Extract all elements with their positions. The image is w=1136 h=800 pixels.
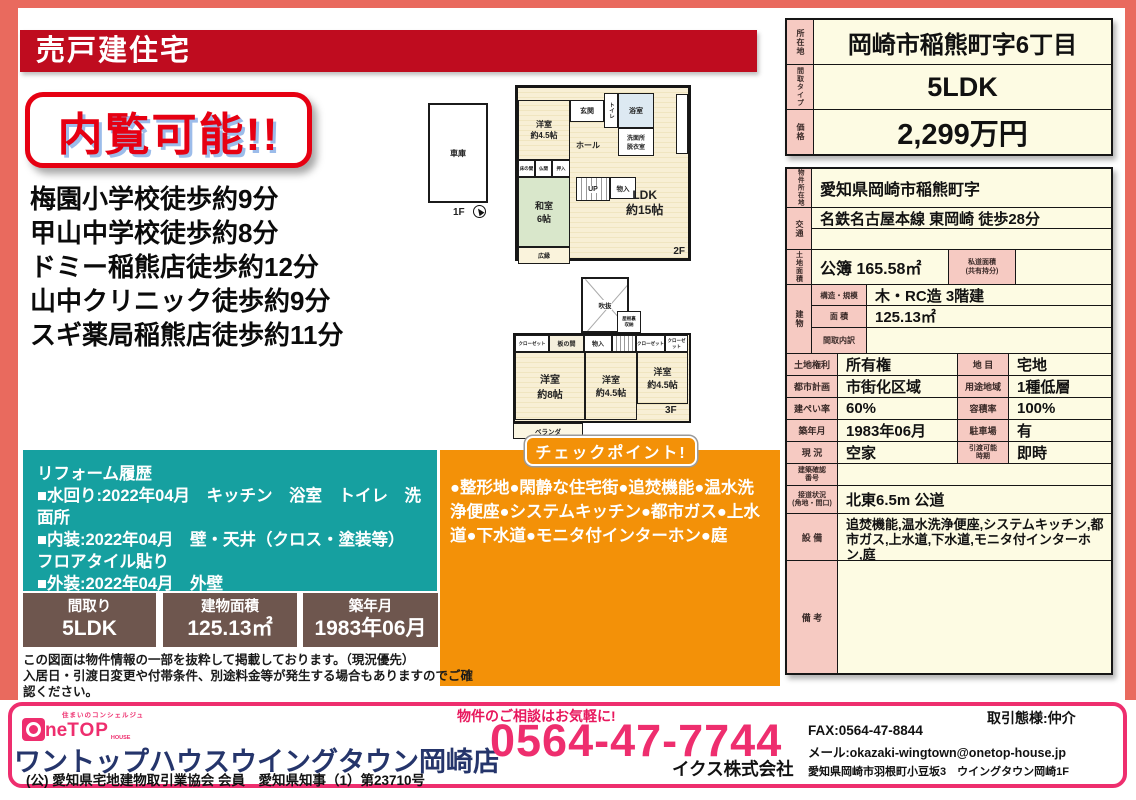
onetop-logo: ne TOP HOUSE [22,717,130,741]
reform-history-box: リフォーム履歴 ■水回り:2022年04月 キッチン 浴室 トイレ 洗面所 ■内… [23,450,437,591]
detail-biko [838,561,1111,673]
stat-label: 間取り [23,598,156,616]
detail-setsudo-label: 接道状況 (角地・間口) [787,486,837,513]
room-butsuma: 仏間 [535,160,552,177]
room-toilet: トイレ [604,93,618,128]
logo-o-icon [22,718,45,741]
stat-value: 125.13㎡ [163,616,297,642]
title-banner: 売戸建住宅 [20,30,757,72]
room-yoshitsu-8: 洋室 約8帖 [515,352,585,420]
email-address: メール:okazaki-wingtown@onetop-house.jp [808,742,1066,761]
detail-parking-label: 駐車場 [958,420,1008,441]
detail-land-label: 土地面積 [787,250,811,284]
detail-access-2 [812,229,1111,249]
badge-text: 内覧可能!! [58,98,280,163]
detail-parking: 有 [1009,420,1111,441]
room-washitsu: 和室 6帖 [518,177,570,247]
room-hall-label: ホール [576,140,600,151]
detail-hikiwatashi: 即時 [1009,442,1111,463]
stat-label: 築年月 [303,598,438,616]
room-closet-2: クローゼット [636,335,665,352]
detail-chimoku-label: 地 目 [958,354,1008,375]
reform-line: ■外装:2022年04月 外壁 [37,573,423,595]
association-line: (公) 愛知県宅地建物取引業協会 会員 愛知県知事（1）第23710号 [26,769,425,789]
room-yaneura: 屋根裏 収納 [617,311,641,333]
detail-hikiwatashi-label: 引渡可能 時期 [958,442,1008,463]
detail-setsubi-label: 設 備 [787,514,837,560]
detail-setsudo: 北東6.5m 公道 [838,486,1111,513]
frame-left [0,0,18,700]
compass-icon [473,205,486,218]
floor-label-3f: 3F [665,405,677,416]
flyer-page: 売戸建住宅 内覧可能!! 梅園小学校徒歩約9分 甲山中学校徒歩約8分 ドミー稲熊… [0,0,1136,800]
detail-genkyo: 空家 [838,442,957,463]
detail-barea: 125.13㎡ [867,306,1111,327]
detail-rights-label: 土地権利 [787,354,837,375]
summary-type-label: 間取タイプ [787,65,813,109]
detail-loc-label: 物件所在地 [787,169,811,207]
detail-land: 公簿 165.58㎡ [812,250,948,284]
detail-road-area-label: 私道面積 (共有持分) [949,250,1015,284]
detail-structure-label: 構造・規模 [812,285,866,305]
disclaimer: この図面は物件情報の一部を抜粋して掲載しております。（現況優先） 入居日・引渡日… [23,652,483,700]
detail-genkyo-label: 現 況 [787,442,837,463]
floor-3f: 吹抜 屋根裏 収納 クローゼット 板の間 物入 DN クローゼット [513,277,691,443]
detail-chiku: 1983年06月 [838,420,957,441]
detail-kenpei-label: 建ぺい率 [787,398,837,419]
frame-top [0,0,1136,8]
stat-value: 5LDK [23,616,156,642]
detail-madori-label: 間取内訳 [812,328,866,353]
reform-title: リフォーム履歴 [37,463,423,485]
room-genkan: 玄関 [570,100,604,122]
detail-setsubi: 追焚機能,温水洗浄便座,システムキッチン,都市ガス,上水道,下水道,モニタ付イン… [838,514,1111,560]
room-monoire-3f: 物入 [584,335,612,352]
checkpoint-body: ●整形地●閑静な住宅街●追焚機能●温水洗浄便座●システムキッチン●都市ガス●上水… [450,476,768,548]
reform-line: ■内装:2022年04月 壁・天井（クロス・塗装等） フロアタイル貼り [37,529,423,573]
room-hiroen: 広縁 [518,247,570,264]
detail-chimoku: 宅地 [1009,354,1111,375]
detail-structure: 木・RC造 3階建 [867,285,1111,305]
detail-loc: 愛知県岡崎市稲熊町字 [812,169,1111,207]
stairs-dn [612,335,636,352]
room-yoshitsu-4-5: 洋室 約4.5帖 [518,100,570,160]
summary-price-label: 価格 [787,110,813,154]
office-address: 愛知県岡崎市羽根町小豆坂3 ウイングタウン岡崎1F [808,763,1069,779]
detail-access: 名鉄名古屋本線 東岡崎 徒歩28分 [812,208,1111,228]
detail-kakunin-label: 建築確認 番号 [787,464,837,485]
detail-access-label: 交通 [787,208,811,249]
kitchen-counter [676,94,688,154]
detail-city: 市街化区域 [838,376,957,397]
room-oshiire: 押入 [552,160,570,177]
stat-built-date: 築年月 1983年06月 [303,593,438,647]
detail-chiku-label: 築年月 [787,420,837,441]
detail-kenpei: 60% [838,398,957,419]
detail-youto-label: 用途地域 [958,376,1008,397]
detail-table: 物件所在地 愛知県岡崎市稲熊町字 交通 名鉄名古屋本線 東岡崎 徒歩28分 土地… [785,167,1113,675]
walk-distance-list: 梅園小学校徒歩約9分 甲山中学校徒歩約8分 ドミー稲熊店徒歩約12分 山中クリニ… [30,182,430,352]
room-closet-1: クローゼット [515,335,549,352]
disclaimer-line: 入居日・引渡日変更や付帯条件、別途料金等が発生する場合もありますのでご確認くださ… [23,668,483,700]
footer: 住まいのコンシェルジュ ne TOP HOUSE ワントップハウスウイングタウン… [8,702,1127,788]
detail-road-area [1016,250,1111,284]
walk-item: ドミー稲熊店徒歩約12分 [30,250,430,284]
floor-label-2f: 2F [673,246,685,257]
room-closet-3: クローゼット [665,335,688,352]
stat-label: 建物面積 [163,598,297,616]
room-senmen: 洗面所 脱衣室 [618,128,654,156]
viewing-available-badge: 内覧可能!! [25,92,312,168]
floor-plan: 車庫 1F 洋室 約4.5帖 床の間 仏間 押入 和室 6帖 広縁 [425,83,697,448]
floor-2f: 洋室 約4.5帖 床の間 仏間 押入 和室 6帖 広縁 玄関 トイレ [515,85,691,261]
fax-number: FAX:0564-47-8844 [808,723,923,738]
room-bath: 浴室 [618,93,654,128]
detail-kakunin [838,464,1111,485]
room-yoshitsu-4-5-mid: 洋室 約4.5帖 [585,352,637,420]
detail-building-label: 建物 [787,285,811,353]
room-tokonoma: 床の間 [518,160,535,177]
deal-type: 取引態様:仲介 [987,708,1076,728]
summary-addr: 岡崎市稲熊町字6丁目 [814,20,1111,64]
detail-youseki-label: 容積率 [958,398,1008,419]
summary-addr-label: 所在地 [787,20,813,64]
logo-top: TOP [67,721,109,741]
checkpoint-title: チェックポイント! [525,436,697,466]
room-ldk-label: LDK 約15帖 [626,188,663,218]
detail-youseki: 100% [1009,398,1111,419]
checkpoint-box: チェックポイント! ●整形地●閑静な住宅街●追焚機能●温水洗浄便座●システムキッ… [440,450,780,686]
stat-building-area: 建物面積 125.13㎡ [163,593,297,647]
stairs-up: UP [576,177,610,201]
detail-madori [867,328,1111,353]
stat-madori: 間取り 5LDK [23,593,156,647]
floor-label-1f: 1F [453,207,465,218]
detail-youto: 1種低層 [1009,376,1111,397]
logo-ne: ne [45,721,67,741]
detail-city-label: 都市計画 [787,376,837,397]
frame-right [1125,0,1136,700]
summary-table: 所在地 岡崎市稲熊町字6丁目 間取タイプ 5LDK 価格 2,299万円 [785,18,1113,156]
room-yoshitsu-4-5-right: 洋室 約4.5帖 [637,352,688,404]
detail-barea-label: 面 積 [812,306,866,327]
summary-type: 5LDK [814,65,1111,109]
company-name: イクス株式会社 [672,756,794,781]
room-garage: 車庫 [428,103,488,203]
room-itanoma: 板の間 [549,335,584,352]
walk-item: 山中クリニック徒歩約9分 [30,284,430,318]
walk-item: 甲山中学校徒歩約8分 [30,216,430,250]
summary-price: 2,299万円 [814,110,1111,154]
detail-biko-label: 備 考 [787,561,837,673]
walk-item: 梅園小学校徒歩約9分 [30,182,430,216]
reform-line: ■水回り:2022年04月 キッチン 浴室 トイレ 洗面所 [37,485,423,529]
walk-item: スギ薬局稲熊店徒歩約11分 [30,318,430,352]
stat-value: 1983年06月 [303,616,438,642]
disclaimer-line: この図面は物件情報の一部を抜粋して掲載しております。（現況優先） [23,652,483,668]
detail-rights: 所有権 [838,354,957,375]
